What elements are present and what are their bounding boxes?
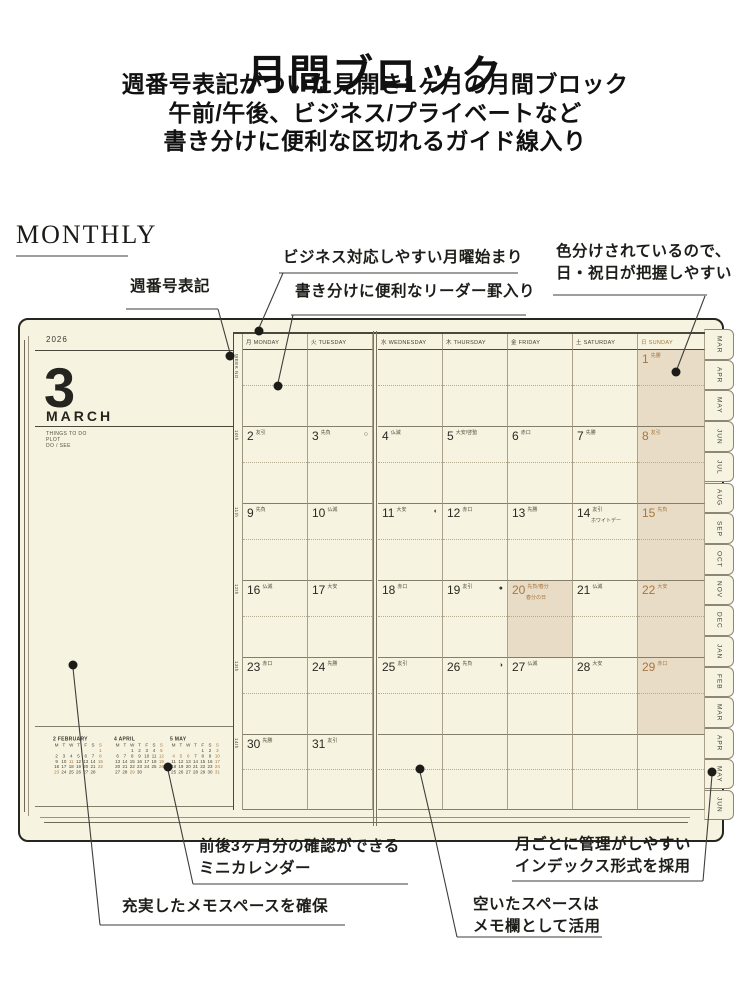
calendar-day-cell: 21仏滅 xyxy=(573,581,638,658)
index-tab-apr: APR xyxy=(704,360,734,391)
index-tab-jul: JUL xyxy=(704,452,734,483)
day-cell-top: 7先勝 xyxy=(573,427,637,442)
index-tab-label: MAY xyxy=(716,397,723,414)
index-tab-label: SEP xyxy=(716,521,723,537)
rokuyo-label: 友引 xyxy=(462,584,472,591)
callout-index-tabs: 月ごとに管理がしやすい インデックス形式を採用 xyxy=(515,834,691,878)
rokuyo-label: 赤口 xyxy=(397,584,407,591)
index-tab-oct: OCT xyxy=(704,544,734,575)
rokuyo-label: 先負/春分 xyxy=(527,584,548,591)
day-number: 1 xyxy=(642,353,649,365)
calendar-day-cell: 2友引 xyxy=(243,427,308,504)
day-cell-top: 31友引 xyxy=(308,735,372,750)
week-number-label: 13th xyxy=(234,661,239,672)
leader-rule-line xyxy=(638,539,704,540)
page-edge-left xyxy=(24,340,25,812)
leader-rule-line xyxy=(573,462,637,463)
calendar-day-cell: 9先負 xyxy=(243,504,308,581)
mini-calendar-grid: MTWTFSS123456789101112131415161718192021… xyxy=(53,743,109,775)
day-number: 28 xyxy=(577,661,590,673)
day-cell-top: 28大安 xyxy=(573,658,637,673)
leader-rule-line xyxy=(308,616,372,617)
calendar-day-cell: 23赤口 xyxy=(243,658,308,735)
rokuyo-label: 友引 xyxy=(651,430,661,437)
page-edge-left-2 xyxy=(28,336,29,816)
leader-rule-line xyxy=(573,385,637,386)
leader-rule-line xyxy=(378,462,442,463)
page-edge-bottom xyxy=(40,817,690,818)
todo-labels: THINGS TO DO PLOT DO / SEE xyxy=(46,431,87,449)
index-tab-label: APR xyxy=(716,735,723,751)
leader-rule-line xyxy=(243,539,307,540)
leader-rule-line xyxy=(308,385,372,386)
mini-calendar-day: 25 xyxy=(150,764,157,769)
leader-rule-line xyxy=(378,539,442,540)
calendar-day-cell: 3先負○ xyxy=(308,427,373,504)
day-cell-top: 10仏滅 xyxy=(308,504,372,519)
calendar-empty-cell xyxy=(243,350,308,427)
week-number-label: 14th xyxy=(234,738,239,749)
subtitle-line-2: 午前/午後、ビジネス/プライベートなど xyxy=(0,99,750,128)
mini-calendar-day: 22 xyxy=(97,764,104,769)
rokuyo-label: 大安 xyxy=(657,584,667,591)
weekday-header: 水 WEDNESDAY xyxy=(378,334,443,350)
leader-rule-line xyxy=(243,385,307,386)
rule-under-year xyxy=(35,350,233,351)
index-tab-label: NOV xyxy=(716,581,723,598)
index-tab-label: DEC xyxy=(716,612,723,629)
day-number: 3 xyxy=(312,430,319,442)
calendar-day-cell: 14友引ホワイトデー xyxy=(573,504,638,581)
mini-calendar-day: 26 xyxy=(75,769,82,774)
calendar-day-cell: 27仏滅 xyxy=(508,658,573,735)
leader-rule-line xyxy=(308,769,372,770)
calendar-day-cell: 20先負/春分春分の日 xyxy=(508,581,573,658)
callout-empty-space: 空いたスペースは メモ欄として活用 xyxy=(473,894,601,938)
leader-rule-line xyxy=(378,769,442,770)
leader-rule-line xyxy=(508,462,572,463)
day-cell-top: 3先負 xyxy=(308,427,372,442)
index-tab-label: FEB xyxy=(716,674,723,690)
calendar-day-cell: 31友引 xyxy=(308,735,373,810)
leader-rule-line xyxy=(573,769,637,770)
index-tab-may: MAY xyxy=(704,390,734,421)
day-cell-top: 21仏滅 xyxy=(573,581,637,596)
week-number-label: 12th xyxy=(234,584,239,595)
mini-calendar-day: 25 xyxy=(170,769,177,774)
day-number: 23 xyxy=(247,661,260,673)
calendar-empty-cell xyxy=(508,350,573,427)
day-cell-top: 12赤口 xyxy=(443,504,507,519)
callout-monday-start: ビジネス対応しやすい月曜始まり xyxy=(283,247,523,269)
index-tab-mar: MAR xyxy=(704,329,734,360)
index-tab-nov: NOV xyxy=(704,575,734,606)
calendar-day-cell: 19友引● xyxy=(443,581,508,658)
calendar-empty-cell xyxy=(573,735,638,810)
rokuyo-label: 仏滅 xyxy=(391,430,401,437)
leader-rule-line xyxy=(638,616,704,617)
week-number-label: 11th xyxy=(234,507,239,517)
calendar-day-cell: 6赤口 xyxy=(508,427,573,504)
calendar-day-cell: 11大安◐ xyxy=(378,504,443,581)
moon-phase-icon: ◑ xyxy=(499,662,503,669)
rokuyo-label: 先勝 xyxy=(327,661,337,668)
rokuyo-label: 先勝 xyxy=(586,430,596,437)
weekday-header: 木 THURSDAY xyxy=(443,334,508,350)
calendar-day-cell: 13先勝 xyxy=(508,504,573,581)
subtitle-line-1: 週番号表記がついた見開き1ヶ月の月間ブロック xyxy=(0,70,750,99)
mini-calendar: 5 MAYMTWTFSS1234567891011121314151617181… xyxy=(170,736,232,798)
day-number: 4 xyxy=(382,430,389,442)
mini-calendar-inner: 4 APRILMTWTFSS12345678910111213141516171… xyxy=(114,736,170,775)
leader-rule-line xyxy=(243,769,307,770)
page-edge-bottom-2 xyxy=(44,822,688,823)
rokuyo-label: 大安 xyxy=(592,661,602,668)
day-number: 5 xyxy=(447,430,454,442)
index-tab-label: OCT xyxy=(716,551,723,568)
calendar-empty-cell xyxy=(443,350,508,427)
mini-calendar-day: 30 xyxy=(206,769,213,774)
leader-rule-line xyxy=(573,693,637,694)
rokuyo-label: 赤口 xyxy=(521,430,531,437)
day-number: 12 xyxy=(447,507,460,519)
index-tab-jun: JUN xyxy=(704,790,734,821)
mini-calendar-day: 27 xyxy=(185,769,192,774)
index-tab-label: JAN xyxy=(716,644,723,659)
day-number: 18 xyxy=(382,584,395,596)
day-cell-top: 13先勝 xyxy=(508,504,572,519)
index-tab-dec: DEC xyxy=(704,605,734,636)
mini-calendar-day: 24 xyxy=(60,769,67,774)
day-number: 7 xyxy=(577,430,584,442)
index-tab-jan: JAN xyxy=(704,636,734,667)
calendar-empty-cell xyxy=(508,735,573,810)
index-tab-feb: FEB xyxy=(704,667,734,698)
leader-rule-line xyxy=(508,693,572,694)
weekday-header: 土 SATURDAY xyxy=(573,334,638,350)
rokuyo-label: 先負 xyxy=(657,507,667,514)
rule-above-minicals xyxy=(35,726,233,727)
weekday-header: 火 TUESDAY xyxy=(308,334,373,350)
day-number: 24 xyxy=(312,661,325,673)
day-number: 27 xyxy=(512,661,525,673)
moon-phase-icon: ○ xyxy=(364,431,368,438)
rokuyo-label: 赤口 xyxy=(262,661,272,668)
day-cell-top: 30先勝 xyxy=(243,735,307,750)
leader-rule-line xyxy=(308,462,372,463)
day-note: 春分の日 xyxy=(526,596,572,601)
calendar-day-cell: 16仏滅 xyxy=(243,581,308,658)
index-tab-label: JUN xyxy=(716,797,723,813)
day-number: 19 xyxy=(447,584,460,596)
calendar-day-cell: 28大安 xyxy=(573,658,638,735)
leader-rule-line xyxy=(573,616,637,617)
mini-calendar: 4 APRILMTWTFSS12345678910111213141516171… xyxy=(114,736,176,798)
day-cell-top: 11大安 xyxy=(378,504,442,519)
week-number-label: 10th xyxy=(234,430,239,441)
leader-rule-line xyxy=(638,462,704,463)
leader-rule-line xyxy=(378,693,442,694)
rule-below-minicals xyxy=(35,806,233,807)
rokuyo-label: 先勝 xyxy=(651,353,661,360)
index-tab-label: MAR xyxy=(716,704,723,721)
calendar-day-cell: 12赤口 xyxy=(443,504,508,581)
index-tab-label: APR xyxy=(716,367,723,383)
rokuyo-label: 友引 xyxy=(256,430,266,437)
mini-calendar: 2 FEBRUARYMTWTFSS12345678910111213141516… xyxy=(53,736,115,798)
index-tab-jun: JUN xyxy=(704,421,734,452)
leader-rule-line xyxy=(378,385,442,386)
product-showcase: 月間ブロック 週番号表記がついた見開き1ヶ月の月間ブロック 午前/午後、ビジネス… xyxy=(0,0,750,1000)
mini-calendar-grid: MTWTFSS123456789101112131415161718192021… xyxy=(114,743,170,775)
index-tab-label: AUG xyxy=(716,489,723,506)
day-cell-top: 4仏滅 xyxy=(378,427,442,442)
leader-rule-line xyxy=(378,616,442,617)
mini-calendar-day: 27 xyxy=(114,769,121,774)
rokuyo-label: 先負 xyxy=(256,507,266,514)
mini-calendar-label: 2 FEBRUARY xyxy=(53,736,109,742)
calendar-day-cell: 18赤口 xyxy=(378,581,443,658)
rokuyo-label: 赤口 xyxy=(657,661,667,668)
rokuyo-label: 友引 xyxy=(592,507,602,514)
calendar-day-cell: 4仏滅 xyxy=(378,427,443,504)
month-grid: WEEK NO 月 MONDAY火 TUESDAY水 WEDNESDAY木 TH… xyxy=(233,332,705,810)
callout-mini-calendar: 前後3ヶ月分の確認ができる ミニカレンダー xyxy=(199,836,400,880)
day-number: 29 xyxy=(642,661,655,673)
mini-calendar-day: 23 xyxy=(53,769,60,774)
day-number: 21 xyxy=(577,584,590,596)
leader-rule-line xyxy=(508,769,572,770)
leader-rule-line xyxy=(243,616,307,617)
day-cell-top: 2友引 xyxy=(243,427,307,442)
section-label-monthly: MONTHLY xyxy=(16,220,157,250)
rokuyo-label: 先勝 xyxy=(527,507,537,514)
day-number: 30 xyxy=(247,738,260,750)
mini-calendar-day: 24 xyxy=(143,764,150,769)
day-number: 20 xyxy=(512,584,525,596)
day-cell-top: 19友引 xyxy=(443,581,507,596)
mini-calendar-day: 28 xyxy=(121,769,128,774)
index-tab-mar: MAR xyxy=(704,697,734,728)
index-tab-aug: AUG xyxy=(704,483,734,514)
rokuyo-label: 仏滅 xyxy=(592,584,602,591)
mini-calendar-inner: 2 FEBRUARYMTWTFSS12345678910111213141516… xyxy=(53,736,109,775)
day-number: 17 xyxy=(312,584,325,596)
day-cell-top: 15先負 xyxy=(638,504,704,519)
mini-calendar-day: 28 xyxy=(89,769,96,774)
callout-leader-rule: 書き分けに便利なリーダー罫入り xyxy=(295,281,535,303)
index-tab-label: MAY xyxy=(716,766,723,783)
day-number: 8 xyxy=(642,430,649,442)
day-number: 16 xyxy=(247,584,260,596)
day-number: 11 xyxy=(382,507,394,519)
moon-phase-icon: ● xyxy=(499,585,503,592)
mini-calendar-day: 28 xyxy=(192,769,199,774)
calendar-day-cell: 25友引 xyxy=(378,658,443,735)
callout-color-coded: 色分けされているので、 日・祝日が把握しやすい xyxy=(556,241,732,285)
day-cell-top: 5大安/啓蟄 xyxy=(443,427,507,442)
weekday-header: 日 SUNDAY xyxy=(638,334,705,350)
leader-rule-line xyxy=(508,385,572,386)
calendar-empty-cell xyxy=(378,735,443,810)
calendar-day-cell: 10仏滅 xyxy=(308,504,373,581)
rokuyo-label: 大安 xyxy=(396,507,406,514)
leader-rule-line xyxy=(243,693,307,694)
day-number: 26 xyxy=(447,661,460,673)
calendar-empty-cell xyxy=(573,350,638,427)
mini-calendar-day: 27 xyxy=(82,769,89,774)
index-tab-label: MAR xyxy=(716,336,723,353)
calendar-empty-cell xyxy=(638,735,705,810)
day-cell-top: 26先負 xyxy=(443,658,507,673)
day-number: 15 xyxy=(642,507,655,519)
day-cell-top: 16仏滅 xyxy=(243,581,307,596)
leader-rule-line xyxy=(443,462,507,463)
day-cell-top: 24先勝 xyxy=(308,658,372,673)
leader-rule-line xyxy=(638,769,704,770)
planner-month-name: MARCH xyxy=(46,408,113,424)
mini-calendar-inner: 5 MAYMTWTFSS1234567891011121314151617181… xyxy=(170,736,226,775)
day-number: 14 xyxy=(577,507,590,519)
leader-rule-line xyxy=(443,693,507,694)
page-subtitle: 週番号表記がついた見開き1ヶ月の月間ブロック 午前/午後、ビジネス/プライベート… xyxy=(0,70,750,156)
day-number: 2 xyxy=(247,430,254,442)
day-cell-top: 23赤口 xyxy=(243,658,307,673)
calendar-day-cell: 7先勝 xyxy=(573,427,638,504)
leader-rule-line xyxy=(443,616,507,617)
day-cell-top: 1先勝 xyxy=(638,350,704,365)
day-cell-top: 22大安 xyxy=(638,581,704,596)
leader-rule-line xyxy=(443,539,507,540)
rokuyo-label: 先負 xyxy=(462,661,472,668)
index-tab-sep: SEP xyxy=(704,513,734,544)
week-no-header: WEEK NO xyxy=(234,354,239,379)
mini-calendar-day: 31 xyxy=(214,769,221,774)
leader-rule-line xyxy=(508,539,572,540)
day-cell-top: 27仏滅 xyxy=(508,658,572,673)
moon-phase-icon: ◐ xyxy=(434,508,438,515)
day-number: 10 xyxy=(312,507,325,519)
leader-rule-line xyxy=(638,693,704,694)
leader-rule-line xyxy=(508,616,572,617)
day-cell-top: 9先負 xyxy=(243,504,307,519)
day-cell-top: 8友引 xyxy=(638,427,704,442)
index-tab-may: MAY xyxy=(704,759,734,790)
calendar-day-cell: 15先負 xyxy=(638,504,705,581)
weekday-header: 金 FRIDAY xyxy=(508,334,573,350)
planner-year: 2026 xyxy=(46,335,68,344)
leader-rule-line xyxy=(443,769,507,770)
page-binding xyxy=(373,331,377,826)
leader-rule-line xyxy=(308,539,372,540)
rokuyo-label: 大安/啓蟄 xyxy=(456,430,477,437)
mini-calendar-day: 29 xyxy=(199,769,206,774)
day-cell-top: 25友引 xyxy=(378,658,442,673)
calendar-empty-cell xyxy=(378,350,443,427)
day-note: ホワイトデー xyxy=(591,519,637,524)
calendar-day-cell: 24先勝 xyxy=(308,658,373,735)
leader-rule-line xyxy=(443,385,507,386)
calendar-empty-cell xyxy=(308,350,373,427)
rokuyo-label: 大安 xyxy=(327,584,337,591)
day-number: 9 xyxy=(247,507,254,519)
mini-calendar-day: 29 xyxy=(129,769,136,774)
calendar-day-cell: 8友引 xyxy=(638,427,705,504)
mini-calendar-day: 25 xyxy=(68,769,75,774)
calendar-empty-cell xyxy=(443,735,508,810)
rokuyo-label: 友引 xyxy=(397,661,407,668)
day-number: 22 xyxy=(642,584,655,596)
leader-rule-line xyxy=(638,385,704,386)
mini-calendar-day: 30 xyxy=(136,769,143,774)
rokuyo-label: 仏滅 xyxy=(527,661,537,668)
weekday-header: 月 MONDAY xyxy=(243,334,308,350)
mini-calendar-day: 26 xyxy=(177,769,184,774)
callout-week-number: 週番号表記 xyxy=(130,276,210,298)
day-number: 13 xyxy=(512,507,525,519)
day-cell-top: 18赤口 xyxy=(378,581,442,596)
rokuyo-label: 仏滅 xyxy=(327,507,337,514)
rokuyo-label: 先負 xyxy=(321,430,331,437)
leader-rule-line xyxy=(573,539,637,540)
calendar-day-cell: 5大安/啓蟄 xyxy=(443,427,508,504)
index-tab-apr: APR xyxy=(704,728,734,759)
day-cell-top: 17大安 xyxy=(308,581,372,596)
calendar-day-cell: 30先勝 xyxy=(243,735,308,810)
callout-memo-space: 充実したメモスペースを確保 xyxy=(122,896,328,918)
index-tab-label: JUN xyxy=(716,429,723,445)
day-number: 25 xyxy=(382,661,395,673)
day-cell-top: 6赤口 xyxy=(508,427,572,442)
day-number: 6 xyxy=(512,430,519,442)
rule-under-month xyxy=(35,426,233,427)
mini-calendar-day: 26 xyxy=(158,764,165,769)
calendar-day-cell: 1先勝 xyxy=(638,350,705,427)
day-cell-top: 20先負/春分 xyxy=(508,581,572,596)
mini-calendar-label: 4 APRIL xyxy=(114,736,170,742)
day-number: 31 xyxy=(312,738,325,750)
rokuyo-label: 先勝 xyxy=(262,738,272,745)
index-tab-label: JUL xyxy=(716,460,723,475)
day-cell-top: 29赤口 xyxy=(638,658,704,673)
memo-space xyxy=(35,430,233,724)
calendar-day-cell: 29赤口 xyxy=(638,658,705,735)
rokuyo-label: 赤口 xyxy=(462,507,472,514)
calendar-day-cell: 17大安 xyxy=(308,581,373,658)
mini-calendar-label: 5 MAY xyxy=(170,736,226,742)
day-cell-top: 14友引 xyxy=(573,504,637,519)
subtitle-line-3: 書き分けに便利な区切れるガイド線入り xyxy=(0,127,750,156)
mini-calendar-grid: MTWTFSS123456789101112131415161718192021… xyxy=(170,743,226,775)
calendar-day-cell: 26先負◑ xyxy=(443,658,508,735)
leader-rule-line xyxy=(308,693,372,694)
rokuyo-label: 友引 xyxy=(327,738,337,745)
leader-rule-line xyxy=(243,462,307,463)
rokuyo-label: 仏滅 xyxy=(262,584,272,591)
calendar-day-cell: 22大安 xyxy=(638,581,705,658)
